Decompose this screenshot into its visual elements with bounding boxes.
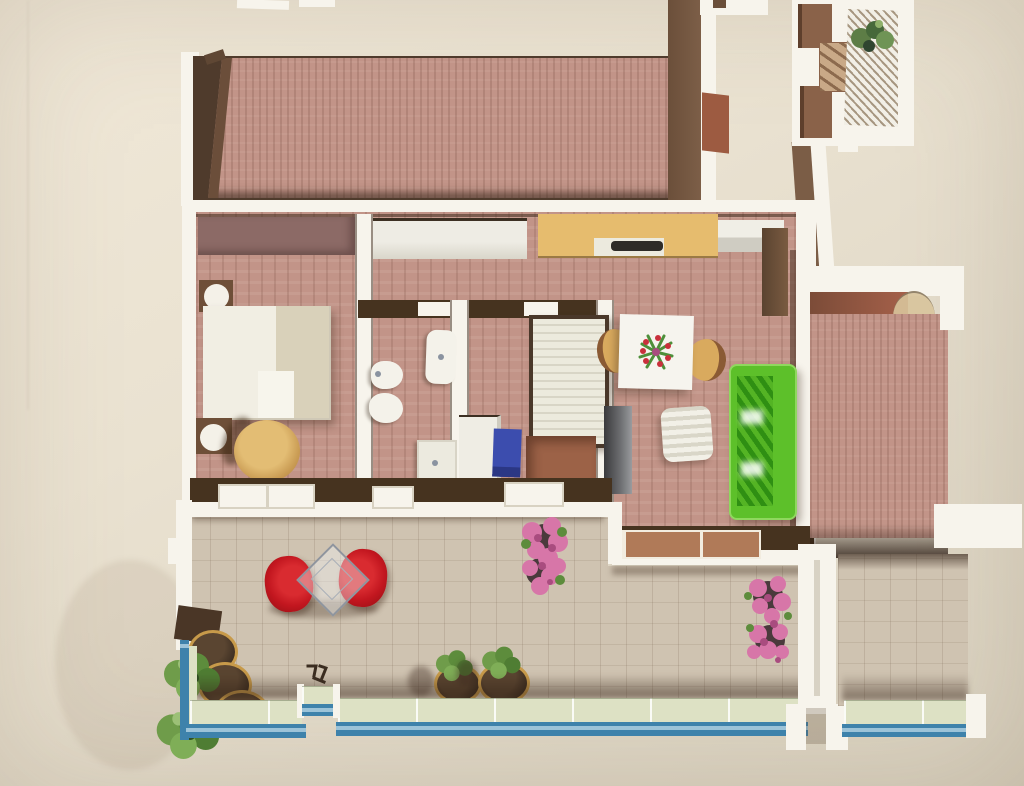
terrace-divider-foot bbox=[786, 704, 806, 750]
balcony-plant bbox=[845, 16, 901, 60]
glass-railing-rail bbox=[336, 722, 808, 736]
railing-gate-post bbox=[333, 684, 340, 718]
bathroom-door-sill bbox=[372, 486, 414, 509]
wall-top-sliver bbox=[237, 0, 289, 10]
door-gap bbox=[524, 302, 558, 316]
flower-centerpiece bbox=[634, 330, 678, 374]
double-bed bbox=[203, 306, 331, 420]
glass-railing-panel bbox=[190, 700, 302, 727]
terrace-left-notch bbox=[168, 538, 178, 564]
washer bbox=[492, 429, 522, 478]
side-terrace-rail-shadow bbox=[842, 674, 968, 700]
side-terrace-top-shadow bbox=[838, 554, 968, 570]
terrace-divider-gap bbox=[806, 708, 826, 744]
entry-door bbox=[702, 92, 729, 153]
glass-railing-panel bbox=[844, 700, 970, 727]
shower-drain bbox=[432, 460, 438, 466]
side-room-floor bbox=[810, 314, 948, 538]
railing-gate-rail bbox=[302, 704, 336, 716]
corridor-top-wall bbox=[700, 0, 768, 15]
gate-glyph bbox=[304, 662, 332, 688]
french-door-sill bbox=[218, 484, 268, 509]
railing-shadow bbox=[196, 674, 804, 698]
white-armchair bbox=[660, 405, 714, 462]
floor-plan-photo bbox=[0, 0, 1024, 786]
sofa-cushions bbox=[737, 376, 773, 506]
bathtub-drain bbox=[438, 354, 444, 360]
bed-sheet bbox=[258, 371, 293, 418]
toilet bbox=[369, 393, 403, 423]
french-door-sill bbox=[267, 484, 315, 509]
wardrobe bbox=[198, 217, 358, 255]
corridor-top-notch bbox=[713, 0, 726, 8]
glass-railing-panel bbox=[338, 698, 806, 725]
round-armchair bbox=[234, 420, 300, 482]
bedroom2-door-sill bbox=[504, 482, 564, 507]
wall-top-sliver bbox=[299, 0, 335, 7]
built-in-closet bbox=[369, 218, 527, 259]
upper-room-floor bbox=[196, 58, 670, 198]
glass-diamond-table bbox=[299, 546, 363, 610]
glass-railing-rail bbox=[842, 724, 972, 737]
corridor-wall bbox=[668, 0, 702, 206]
green-sofa bbox=[729, 364, 797, 520]
balcony-right-wall bbox=[898, 0, 912, 140]
door-gap bbox=[418, 302, 452, 316]
page-crease bbox=[27, 0, 29, 410]
tall-cabinet bbox=[762, 228, 788, 316]
sofa-throw bbox=[741, 462, 763, 476]
bottom-right-wall bbox=[934, 504, 1022, 548]
glass-railing-rail bbox=[186, 724, 306, 738]
single-bed bbox=[529, 315, 609, 448]
terrace-divider-shade bbox=[814, 560, 820, 696]
living-door-sill bbox=[622, 530, 702, 559]
flower-bush bbox=[738, 568, 800, 672]
living-door-sill bbox=[701, 530, 761, 559]
flower-bush bbox=[514, 510, 578, 598]
cooktop bbox=[611, 241, 663, 251]
bidet-tap bbox=[375, 371, 381, 377]
railing-end-post bbox=[966, 694, 986, 738]
balcony-cabinet bbox=[800, 86, 832, 138]
wall-bedroom-bathroom bbox=[355, 214, 373, 508]
side-room-right-wall bbox=[940, 266, 964, 330]
sofa-throw bbox=[741, 410, 763, 424]
